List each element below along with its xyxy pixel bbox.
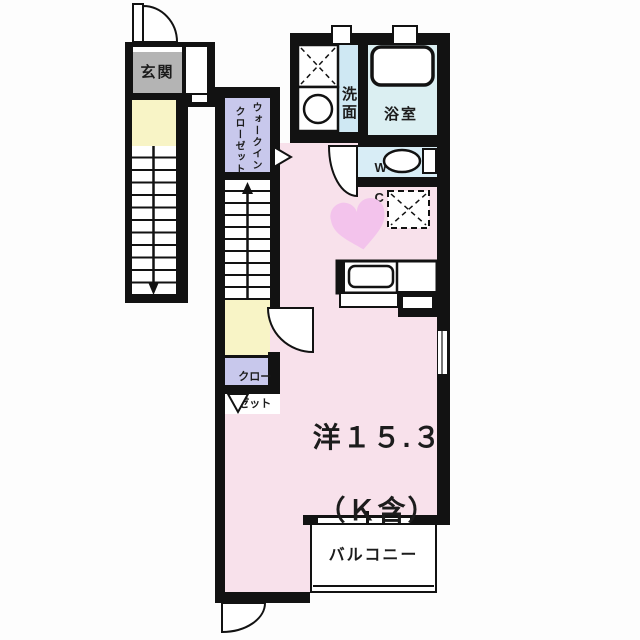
main-room-label-line1: 洋１５.３	[313, 422, 443, 453]
left-outer-wall	[215, 87, 225, 603]
closet-label: クロー ゼット	[226, 358, 268, 424]
wc-label-line1: W	[374, 160, 386, 175]
exterior-door-arc-icon	[222, 603, 265, 632]
wic-right-wall	[270, 98, 280, 308]
washroom-bottom-wall	[290, 132, 362, 143]
vent-duct-2	[392, 25, 418, 45]
top-outer-wall	[290, 33, 450, 45]
bathroom-label: 浴室	[384, 103, 418, 124]
bottom-outer-wall	[215, 592, 310, 603]
vent-duct-1	[331, 25, 352, 45]
entrance-door-leaf-icon	[133, 4, 143, 42]
main-room-label-line2: （Ｋ含）	[318, 495, 438, 526]
wic-bottom-wall	[215, 172, 280, 180]
wc-label-line2: C	[374, 190, 383, 205]
floor-plan-canvas: 玄関 ウォークイン クローゼット クロー ゼット 洗面 浴室 W C	[0, 0, 640, 640]
entrance-step-notch	[192, 95, 207, 102]
bath-wash-divider-wall	[358, 33, 368, 147]
stair-landing-upper	[132, 100, 176, 146]
washroom-label: 洗面	[338, 86, 359, 122]
wic-label-line1: ウォークイン	[248, 102, 263, 171]
entrance-door-arc-icon	[143, 6, 177, 42]
exterior-stairs	[132, 146, 176, 296]
wc-label: W C	[360, 146, 387, 221]
main-room-label: 洋１５.３ （Ｋ含）	[268, 384, 448, 566]
wic-top-wall	[215, 87, 280, 98]
entrance-divider-wall	[182, 47, 186, 93]
entrance-label: 玄関	[133, 61, 182, 82]
stair-landing-lower	[225, 300, 270, 355]
right-wall-window-mullion	[441, 331, 443, 374]
washroom-left-wall	[290, 38, 298, 143]
balcony-inner-line	[313, 585, 434, 587]
wic-label-line2: クローゼット	[231, 106, 246, 175]
interior-stairs	[225, 180, 270, 300]
closet-label-line2: ゼット	[238, 398, 271, 410]
closet-label-line1: クロー	[238, 371, 271, 383]
